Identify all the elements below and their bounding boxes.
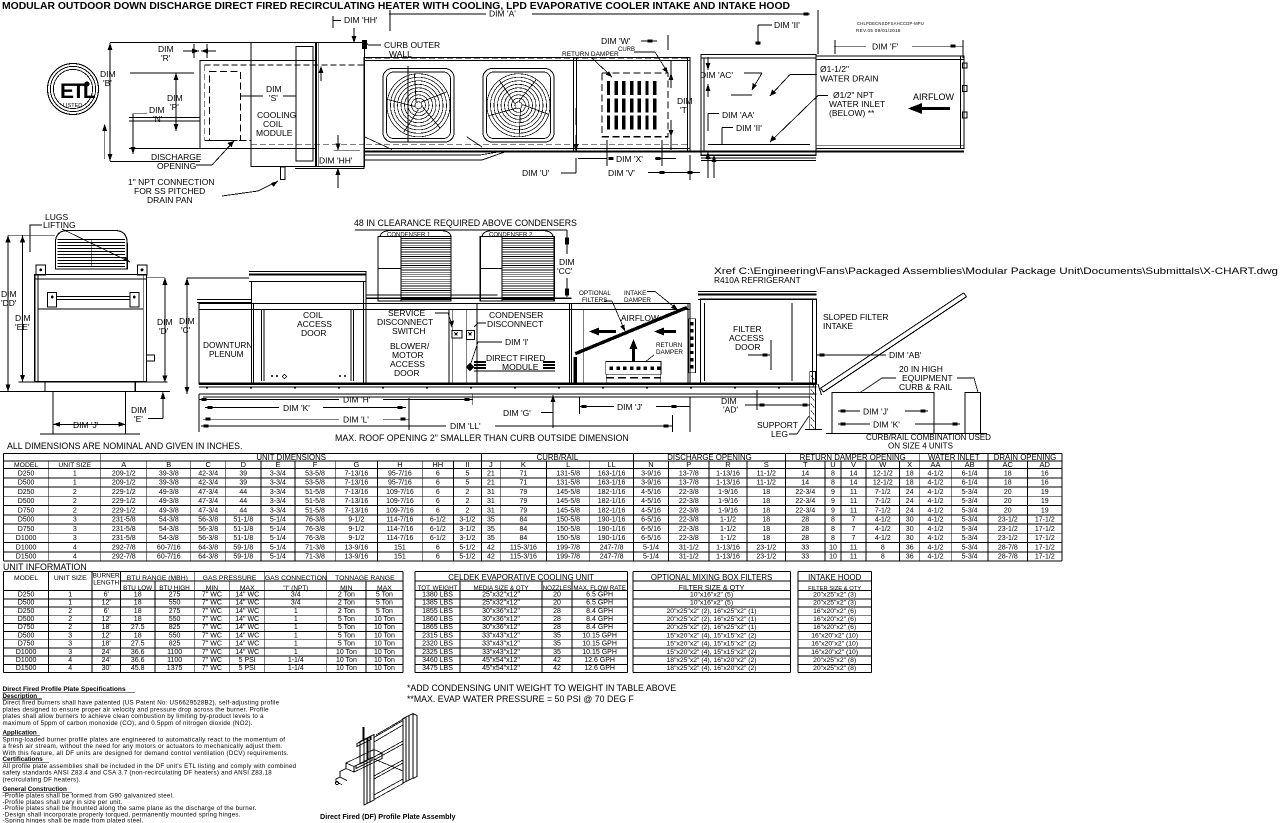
svg-text:190-1/16: 190-1/16 bbox=[598, 526, 626, 533]
svg-text:5-1/4: 5-1/4 bbox=[270, 535, 286, 542]
svg-text:18: 18 bbox=[134, 592, 142, 599]
svg-text:18: 18 bbox=[1004, 480, 1012, 487]
svg-text:42: 42 bbox=[487, 545, 495, 552]
svg-text:DISCHARGE OPENING: DISCHARGE OPENING bbox=[667, 453, 751, 462]
svg-text:4: 4 bbox=[73, 545, 77, 552]
svg-text:GAS PRESSURE: GAS PRESSURE bbox=[203, 575, 257, 582]
svg-text:2: 2 bbox=[68, 616, 72, 623]
svg-text:145-5/8: 145-5/8 bbox=[556, 508, 580, 515]
svg-text:DIM 'AC': DIM 'AC' bbox=[700, 70, 733, 80]
svg-text:44: 44 bbox=[239, 508, 247, 515]
svg-text:9: 9 bbox=[831, 489, 835, 496]
svg-text:4-5/16: 4-5/16 bbox=[641, 508, 661, 515]
svg-text:11: 11 bbox=[850, 508, 857, 515]
svg-text:D1000: D1000 bbox=[16, 649, 37, 656]
svg-text:4-1/2: 4-1/2 bbox=[928, 545, 944, 552]
svg-text:1-9/16: 1-9/16 bbox=[718, 489, 738, 496]
svg-text:42: 42 bbox=[553, 665, 561, 672]
svg-text:DIM 'AB': DIM 'AB' bbox=[889, 350, 922, 360]
svg-text:20"x25"x2" (3): 20"x25"x2" (3) bbox=[813, 592, 856, 599]
svg-text:14" WC: 14" WC bbox=[235, 616, 259, 623]
svg-text:35: 35 bbox=[553, 641, 561, 648]
svg-text:L: L bbox=[566, 460, 570, 469]
svg-text:9: 9 bbox=[831, 508, 835, 515]
svg-text:25"x32"x12": 25"x32"x12" bbox=[482, 600, 520, 607]
svg-text:150-5/8: 150-5/8 bbox=[556, 535, 580, 542]
svg-text:10.15 GPH: 10.15 GPH bbox=[582, 641, 617, 648]
svg-text:7" WC: 7" WC bbox=[202, 592, 222, 599]
svg-text:109-7/16: 109-7/16 bbox=[386, 489, 414, 496]
svg-text:6-1/4: 6-1/4 bbox=[962, 470, 978, 477]
svg-text:51-1/8: 51-1/8 bbox=[233, 535, 253, 542]
svg-text:OPTIONAL: OPTIONAL bbox=[579, 290, 611, 297]
svg-text:'AD': 'AD' bbox=[723, 405, 738, 415]
svg-text:22-3/8: 22-3/8 bbox=[679, 508, 699, 515]
svg-text:2320 LBS: 2320 LBS bbox=[422, 641, 453, 648]
svg-text:CONDENSER 1: CONDENSER 1 bbox=[387, 232, 431, 238]
svg-text:60-7/16: 60-7/16 bbox=[157, 554, 181, 561]
svg-text:6: 6 bbox=[436, 508, 440, 515]
svg-text:31: 31 bbox=[487, 498, 495, 505]
svg-text:1-1/2: 1-1/2 bbox=[720, 535, 736, 542]
svg-text:5-3/4: 5-3/4 bbox=[962, 545, 978, 552]
svg-text:19: 19 bbox=[1041, 498, 1049, 505]
svg-text:44: 44 bbox=[239, 498, 247, 505]
svg-text:84: 84 bbox=[520, 517, 528, 524]
svg-text:D750: D750 bbox=[18, 624, 35, 631]
svg-text:44: 44 bbox=[239, 489, 247, 496]
svg-text:1380 LBS: 1380 LBS bbox=[422, 592, 453, 599]
svg-text:30: 30 bbox=[906, 526, 914, 533]
svg-text:25"x32"x12": 25"x32"x12" bbox=[482, 592, 520, 599]
svg-text:7" WC: 7" WC bbox=[202, 608, 222, 615]
svg-text:23-1/2: 23-1/2 bbox=[756, 554, 776, 561]
svg-text:49-3/8: 49-3/8 bbox=[159, 498, 179, 505]
svg-text:114-7/16: 114-7/16 bbox=[386, 535, 413, 542]
svg-text:1-9/16: 1-9/16 bbox=[718, 498, 738, 505]
svg-text:5-1/2: 5-1/2 bbox=[459, 545, 475, 552]
svg-text:22-3/8: 22-3/8 bbox=[679, 489, 699, 496]
svg-text:199-7/8: 199-7/8 bbox=[556, 545, 580, 552]
svg-text:4-5/16: 4-5/16 bbox=[641, 489, 661, 496]
svg-text:1-13/16: 1-13/16 bbox=[716, 554, 740, 561]
svg-text:'DD': 'DD' bbox=[1, 298, 17, 308]
svg-text:12': 12' bbox=[102, 632, 111, 639]
svg-text:MODEL: MODEL bbox=[14, 462, 38, 469]
svg-text:10 Ton: 10 Ton bbox=[374, 616, 395, 623]
svg-text:292-7/8: 292-7/8 bbox=[112, 554, 136, 561]
svg-text:4: 4 bbox=[68, 665, 72, 672]
svg-text:DIM 'LL': DIM 'LL' bbox=[450, 421, 481, 431]
svg-text:D1500: D1500 bbox=[16, 665, 37, 672]
svg-text:51-1/8: 51-1/8 bbox=[233, 517, 253, 524]
svg-text:231-5/8: 231-5/8 bbox=[112, 517, 136, 524]
svg-text:D250: D250 bbox=[18, 489, 35, 496]
svg-text:48 IN CLEARANCE REQUIRED ABOVE: 48 IN CLEARANCE REQUIRED ABOVE CONDENSER… bbox=[354, 218, 577, 228]
svg-text:3: 3 bbox=[68, 632, 72, 639]
svg-text:19: 19 bbox=[1041, 508, 1049, 515]
svg-text:7-13/16: 7-13/16 bbox=[345, 498, 369, 505]
svg-text:1860 LBS: 1860 LBS bbox=[422, 616, 453, 623]
svg-text:5-1/2: 5-1/2 bbox=[459, 554, 475, 561]
svg-text:2 Ton: 2 Ton bbox=[338, 600, 355, 607]
svg-text:231-5/8: 231-5/8 bbox=[112, 526, 136, 533]
svg-text:6: 6 bbox=[436, 480, 440, 487]
svg-text:22-3/8: 22-3/8 bbox=[679, 535, 699, 542]
svg-text:30"x36"x12": 30"x36"x12" bbox=[482, 624, 520, 631]
svg-text:1: 1 bbox=[73, 480, 77, 487]
svg-text:3-3/4: 3-3/4 bbox=[270, 508, 286, 515]
svg-text:DIM 'HH': DIM 'HH' bbox=[344, 15, 378, 25]
svg-text:5 Ton: 5 Ton bbox=[338, 616, 355, 623]
svg-text:18: 18 bbox=[762, 517, 770, 524]
svg-text:35: 35 bbox=[487, 535, 495, 542]
svg-text:E: E bbox=[275, 460, 280, 469]
svg-text:16: 16 bbox=[1041, 480, 1049, 487]
svg-text:5-1/4: 5-1/4 bbox=[270, 526, 286, 533]
svg-text:7-13/16: 7-13/16 bbox=[345, 508, 369, 515]
svg-text:14: 14 bbox=[801, 480, 809, 487]
svg-text:3: 3 bbox=[68, 649, 72, 656]
svg-text:10 Ton: 10 Ton bbox=[374, 649, 395, 656]
svg-text:3: 3 bbox=[68, 641, 72, 648]
svg-text:20"x25"x2" (2), 16"x25"x2" (1): 20"x25"x2" (2), 16"x25"x2" (1) bbox=[667, 608, 757, 615]
svg-text:16"x20"x2" (10): 16"x20"x2" (10) bbox=[811, 641, 858, 648]
svg-text:H: H bbox=[397, 460, 402, 469]
svg-text:12.6 GPH: 12.6 GPH bbox=[584, 657, 615, 664]
svg-text:18: 18 bbox=[134, 632, 142, 639]
svg-text:Direct Fired (DF) Profile Plat: Direct Fired (DF) Profile Plate Assembly bbox=[320, 812, 456, 821]
svg-text:(BELOW) **: (BELOW) ** bbox=[829, 108, 875, 118]
svg-text:17-1/2: 17-1/2 bbox=[1035, 535, 1055, 542]
svg-text:3-1/2: 3-1/2 bbox=[459, 517, 475, 524]
svg-text:3: 3 bbox=[73, 517, 77, 524]
svg-text:INTAKE: INTAKE bbox=[624, 290, 646, 297]
svg-text:UNIT SIZE: UNIT SIZE bbox=[58, 462, 91, 469]
svg-text:SWITCH: SWITCH bbox=[392, 326, 426, 336]
svg-text:14" WC: 14" WC bbox=[235, 649, 259, 656]
svg-text:190-1/16: 190-1/16 bbox=[598, 535, 626, 542]
svg-text:6-1/2: 6-1/2 bbox=[430, 526, 446, 533]
svg-text:1-9/16: 1-9/16 bbox=[718, 508, 738, 515]
svg-text:WATER DRAIN: WATER DRAIN bbox=[820, 74, 879, 84]
svg-text:REV.05 09/01/2018: REV.05 09/01/2018 bbox=[856, 28, 901, 33]
svg-text:'E': 'E' bbox=[134, 414, 143, 424]
svg-text:DIM 'I': DIM 'I' bbox=[505, 337, 529, 347]
svg-text:4-1/2: 4-1/2 bbox=[928, 508, 944, 515]
svg-text:9-1/2: 9-1/2 bbox=[348, 535, 364, 542]
svg-text:28: 28 bbox=[801, 526, 809, 533]
svg-text:6: 6 bbox=[436, 498, 440, 505]
svg-text:33: 33 bbox=[801, 554, 809, 561]
svg-text:5: 5 bbox=[465, 480, 469, 487]
svg-text:5-3/4: 5-3/4 bbox=[962, 526, 978, 533]
svg-text:53-5/8: 53-5/8 bbox=[305, 480, 325, 487]
svg-text:33"x43"x12": 33"x43"x12" bbox=[482, 649, 520, 656]
svg-text:28: 28 bbox=[801, 517, 809, 524]
svg-text:550: 550 bbox=[169, 616, 181, 623]
svg-text:229-1/2: 229-1/2 bbox=[112, 508, 136, 515]
svg-text:(recirculating DF heaters).: (recirculating DF heaters). bbox=[3, 776, 81, 783]
svg-text:56-3/8: 56-3/8 bbox=[198, 517, 218, 524]
svg-text:27.5: 27.5 bbox=[131, 624, 145, 631]
svg-text:FILTERS: FILTERS bbox=[582, 297, 607, 304]
svg-text:14: 14 bbox=[850, 470, 858, 477]
svg-text:DIM 'AA': DIM 'AA' bbox=[722, 110, 755, 120]
svg-text:CURB: CURB bbox=[618, 47, 635, 53]
svg-text:DIM 'II': DIM 'II' bbox=[736, 123, 762, 133]
svg-text:24: 24 bbox=[906, 508, 914, 515]
svg-text:LENGTH: LENGTH bbox=[93, 580, 119, 587]
svg-text:13-9/16: 13-9/16 bbox=[345, 554, 369, 561]
svg-text:35: 35 bbox=[487, 517, 495, 524]
svg-text:D500: D500 bbox=[18, 517, 35, 524]
svg-text:DIM 'HH': DIM 'HH' bbox=[319, 156, 353, 166]
svg-text:4-1/2: 4-1/2 bbox=[928, 489, 944, 496]
svg-text:229-1/2: 229-1/2 bbox=[112, 498, 136, 505]
svg-text:'R': 'R' bbox=[161, 53, 171, 63]
svg-text:DIM 'W': DIM 'W' bbox=[601, 36, 631, 46]
svg-text:825: 825 bbox=[169, 641, 181, 648]
svg-text:8: 8 bbox=[881, 554, 885, 561]
svg-text:5-3/4: 5-3/4 bbox=[962, 535, 978, 542]
svg-text:AB: AB bbox=[965, 460, 975, 469]
svg-text:5 PSI: 5 PSI bbox=[239, 665, 256, 672]
svg-text:14: 14 bbox=[801, 470, 809, 477]
svg-text:14" WC: 14" WC bbox=[235, 641, 259, 648]
svg-text:UNIT SIZE: UNIT SIZE bbox=[54, 575, 87, 582]
svg-text:145-5/8: 145-5/8 bbox=[556, 498, 580, 505]
svg-text:J: J bbox=[489, 460, 493, 469]
svg-text:DIM 'L': DIM 'L' bbox=[343, 415, 369, 425]
svg-text:'EE': 'EE' bbox=[15, 322, 30, 332]
svg-text:51-1/8: 51-1/8 bbox=[233, 526, 253, 533]
svg-text:6.5 GPH: 6.5 GPH bbox=[586, 592, 613, 599]
svg-text:ON SIZE 4 UNITS: ON SIZE 4 UNITS bbox=[888, 442, 953, 451]
svg-text:33"x43"x12": 33"x43"x12" bbox=[482, 632, 520, 639]
svg-text:1: 1 bbox=[73, 470, 77, 477]
svg-text:5 Ton: 5 Ton bbox=[376, 600, 393, 607]
svg-text:150-5/8: 150-5/8 bbox=[556, 526, 580, 533]
svg-text:16"x20"x2" (6): 16"x20"x2" (6) bbox=[813, 608, 856, 615]
svg-text:K: K bbox=[521, 460, 526, 469]
svg-text:11: 11 bbox=[850, 489, 857, 496]
svg-text:GAS CONNECTION: GAS CONNECTION bbox=[265, 575, 327, 582]
svg-text:F: F bbox=[313, 460, 318, 469]
svg-text:209-1/2: 209-1/2 bbox=[112, 480, 136, 487]
svg-text:54-3/8: 54-3/8 bbox=[159, 526, 179, 533]
svg-text:20"x25"x2" (2), 16"x25"x2" (1): 20"x25"x2" (2), 16"x25"x2" (1) bbox=[667, 616, 757, 623]
svg-text:DIM 'F': DIM 'F' bbox=[872, 42, 899, 52]
svg-text:163-1/16: 163-1/16 bbox=[598, 480, 626, 487]
svg-text:ETL: ETL bbox=[60, 80, 96, 103]
svg-text:D1000: D1000 bbox=[16, 535, 37, 542]
svg-text:18: 18 bbox=[762, 535, 770, 542]
svg-text:5 Ton: 5 Ton bbox=[376, 608, 393, 615]
svg-text:12-1/2: 12-1/2 bbox=[873, 480, 893, 487]
svg-text:CURB/RAIL: CURB/RAIL bbox=[537, 453, 579, 462]
svg-text:51-5/8: 51-5/8 bbox=[305, 498, 325, 505]
svg-text:12-1/2: 12-1/2 bbox=[873, 470, 893, 477]
svg-text:11: 11 bbox=[850, 545, 857, 552]
svg-text:V: V bbox=[851, 460, 856, 469]
svg-text:7" WC: 7" WC bbox=[202, 641, 222, 648]
svg-text:1-13/16: 1-13/16 bbox=[716, 545, 740, 552]
svg-text:247-7/8: 247-7/8 bbox=[600, 545, 624, 552]
svg-text:35: 35 bbox=[553, 632, 561, 639]
svg-text:1: 1 bbox=[294, 632, 298, 639]
svg-text:10 Ton: 10 Ton bbox=[336, 649, 357, 656]
svg-text:76-3/8: 76-3/8 bbox=[305, 517, 325, 524]
svg-text:MODULE: MODULE bbox=[502, 362, 539, 372]
svg-text:36: 36 bbox=[906, 554, 914, 561]
svg-text:CURB & RAIL: CURB & RAIL bbox=[899, 382, 953, 392]
svg-text:28: 28 bbox=[801, 535, 809, 542]
svg-text:18: 18 bbox=[134, 608, 142, 615]
svg-text:**MAX. EVAP WATER PRESSURE = 5: **MAX. EVAP WATER PRESSURE = 50 PSI @ 70… bbox=[407, 694, 635, 704]
svg-text:7" WC: 7" WC bbox=[202, 616, 222, 623]
svg-text:Ø1-1/2": Ø1-1/2" bbox=[820, 64, 849, 74]
svg-text:8: 8 bbox=[831, 480, 835, 487]
svg-text:24: 24 bbox=[906, 498, 914, 505]
svg-text:3460 LBS: 3460 LBS bbox=[422, 657, 453, 664]
svg-text:10 Ton: 10 Ton bbox=[374, 641, 395, 648]
svg-text:3-1/2: 3-1/2 bbox=[459, 526, 475, 533]
svg-text:7-13/16: 7-13/16 bbox=[345, 470, 369, 477]
svg-text:1100: 1100 bbox=[167, 649, 182, 656]
svg-text:U: U bbox=[830, 460, 835, 469]
svg-text:16"x20"x2" (6): 16"x20"x2" (6) bbox=[813, 624, 856, 631]
svg-text:30: 30 bbox=[906, 517, 914, 524]
svg-text:59-1/8: 59-1/8 bbox=[233, 554, 253, 561]
svg-text:D500: D500 bbox=[18, 600, 35, 607]
svg-text:5-1/4: 5-1/4 bbox=[270, 545, 286, 552]
svg-text:D500: D500 bbox=[18, 632, 35, 639]
svg-text:7-13/16: 7-13/16 bbox=[345, 480, 369, 487]
svg-text:*ADD CONDENSING UNIT WEIGHT TO: *ADD CONDENSING UNIT WEIGHT TO WEIGHT IN… bbox=[407, 683, 676, 693]
svg-text:7-1/2: 7-1/2 bbox=[875, 498, 891, 505]
svg-text:17-1/2: 17-1/2 bbox=[1035, 526, 1055, 533]
svg-text:95-7/16: 95-7/16 bbox=[388, 470, 412, 477]
svg-text:190-1/16: 190-1/16 bbox=[598, 517, 626, 524]
svg-text:C: C bbox=[206, 460, 212, 469]
svg-text:TONNAGE RANGE: TONNAGE RANGE bbox=[335, 575, 395, 582]
svg-text:W: W bbox=[879, 460, 887, 469]
svg-text:84: 84 bbox=[520, 526, 528, 533]
svg-text:10 Ton: 10 Ton bbox=[374, 665, 395, 672]
svg-text:AIRFLOW: AIRFLOW bbox=[913, 92, 955, 102]
svg-text:53-5/8: 53-5/8 bbox=[305, 470, 325, 477]
svg-text:AA: AA bbox=[930, 460, 940, 469]
svg-text:60-7/16: 60-7/16 bbox=[157, 545, 181, 552]
svg-text:95-7/16: 95-7/16 bbox=[388, 480, 412, 487]
svg-text:DIM 'K': DIM 'K' bbox=[873, 419, 900, 429]
svg-text:12': 12' bbox=[102, 600, 111, 607]
svg-text:47-3/4: 47-3/4 bbox=[198, 508, 218, 515]
svg-text:54-3/8: 54-3/8 bbox=[159, 517, 179, 524]
svg-text:28-7/8: 28-7/8 bbox=[998, 554, 1018, 561]
svg-text:30"x36"x12": 30"x36"x12" bbox=[482, 616, 520, 623]
svg-text:17-1/2: 17-1/2 bbox=[1035, 545, 1055, 552]
svg-text:151: 151 bbox=[394, 554, 406, 561]
svg-text:71-3/8: 71-3/8 bbox=[305, 545, 325, 552]
svg-text:16"x20"x2" (10): 16"x20"x2" (10) bbox=[811, 632, 858, 639]
svg-text:1: 1 bbox=[294, 608, 298, 615]
svg-text:163-1/16: 163-1/16 bbox=[598, 470, 626, 477]
svg-text:28: 28 bbox=[553, 616, 561, 623]
svg-text:5-1/4: 5-1/4 bbox=[270, 517, 286, 524]
svg-text:LIFTING: LIFTING bbox=[43, 220, 76, 230]
svg-text:11-1/2: 11-1/2 bbox=[757, 470, 776, 477]
svg-text:14" WC: 14" WC bbox=[235, 624, 259, 631]
svg-text:150-5/8: 150-5/8 bbox=[556, 517, 580, 524]
svg-text:7" WC: 7" WC bbox=[202, 600, 222, 607]
svg-text:13-9/16: 13-9/16 bbox=[345, 545, 369, 552]
svg-text:10 Ton: 10 Ton bbox=[336, 665, 357, 672]
svg-text:15"x20"x2" (4), 15"x15"x2" (2): 15"x20"x2" (4), 15"x15"x2" (2) bbox=[667, 649, 757, 656]
svg-text:9-1/2: 9-1/2 bbox=[348, 526, 364, 533]
svg-text:DIM 'A': DIM 'A' bbox=[489, 8, 516, 18]
svg-text:MODEL: MODEL bbox=[14, 575, 38, 582]
svg-text:5 PSI: 5 PSI bbox=[239, 657, 256, 664]
svg-text:24': 24' bbox=[102, 649, 111, 656]
svg-text:2315 LBS: 2315 LBS bbox=[422, 632, 453, 639]
svg-text:MODULE: MODULE bbox=[256, 128, 293, 138]
svg-text:5-3/4: 5-3/4 bbox=[962, 508, 978, 515]
svg-text:1-1/4: 1-1/4 bbox=[288, 657, 304, 664]
svg-text:131-5/8: 131-5/8 bbox=[556, 480, 580, 487]
svg-text:4: 4 bbox=[68, 657, 72, 664]
svg-text:D250: D250 bbox=[18, 592, 35, 599]
svg-text:1: 1 bbox=[68, 592, 72, 599]
svg-text:21: 21 bbox=[487, 480, 495, 487]
svg-text:'D': 'D' bbox=[159, 326, 169, 336]
svg-text:6: 6 bbox=[436, 470, 440, 477]
svg-text:3-3/4: 3-3/4 bbox=[270, 489, 286, 496]
svg-text:18: 18 bbox=[1004, 470, 1012, 477]
svg-text:14: 14 bbox=[850, 480, 858, 487]
svg-text:LEG: LEG bbox=[771, 429, 788, 439]
svg-text:45"x54"x12": 45"x54"x12" bbox=[482, 665, 520, 672]
svg-text:16: 16 bbox=[1041, 470, 1049, 477]
svg-text:3/4: 3/4 bbox=[291, 592, 301, 599]
svg-text:71: 71 bbox=[520, 480, 528, 487]
svg-text:MODULAR OUTDOOR DOWN DISCHARGE: MODULAR OUTDOOR DOWN DISCHARGE DIRECT FI… bbox=[2, 1, 790, 12]
svg-text:47-3/4: 47-3/4 bbox=[198, 498, 218, 505]
svg-text:8: 8 bbox=[831, 535, 835, 542]
svg-text:2: 2 bbox=[68, 624, 72, 631]
svg-text:N: N bbox=[648, 460, 653, 469]
svg-text:35: 35 bbox=[553, 649, 561, 656]
svg-text:DIM 'H': DIM 'H' bbox=[343, 395, 371, 405]
svg-text:11-1/2: 11-1/2 bbox=[757, 480, 776, 487]
svg-text:1: 1 bbox=[294, 616, 298, 623]
svg-text:7: 7 bbox=[852, 526, 856, 533]
svg-text:12.6 GPH: 12.6 GPH bbox=[584, 665, 615, 672]
svg-text:231-5/8: 231-5/8 bbox=[112, 535, 136, 542]
svg-text:19: 19 bbox=[1041, 489, 1049, 496]
svg-text:10: 10 bbox=[829, 554, 837, 561]
svg-text:2: 2 bbox=[73, 489, 77, 496]
svg-text:D: D bbox=[241, 460, 247, 469]
svg-text:22-3/8: 22-3/8 bbox=[679, 526, 699, 533]
svg-text:6-1/4: 6-1/4 bbox=[962, 480, 978, 487]
svg-text:3-9/16: 3-9/16 bbox=[641, 470, 661, 477]
svg-text:131-5/8: 131-5/8 bbox=[556, 470, 580, 477]
svg-text:6-5/16: 6-5/16 bbox=[641, 517, 661, 524]
svg-text:D250: D250 bbox=[18, 470, 35, 477]
svg-text:8.4 GPH: 8.4 GPH bbox=[586, 608, 613, 615]
